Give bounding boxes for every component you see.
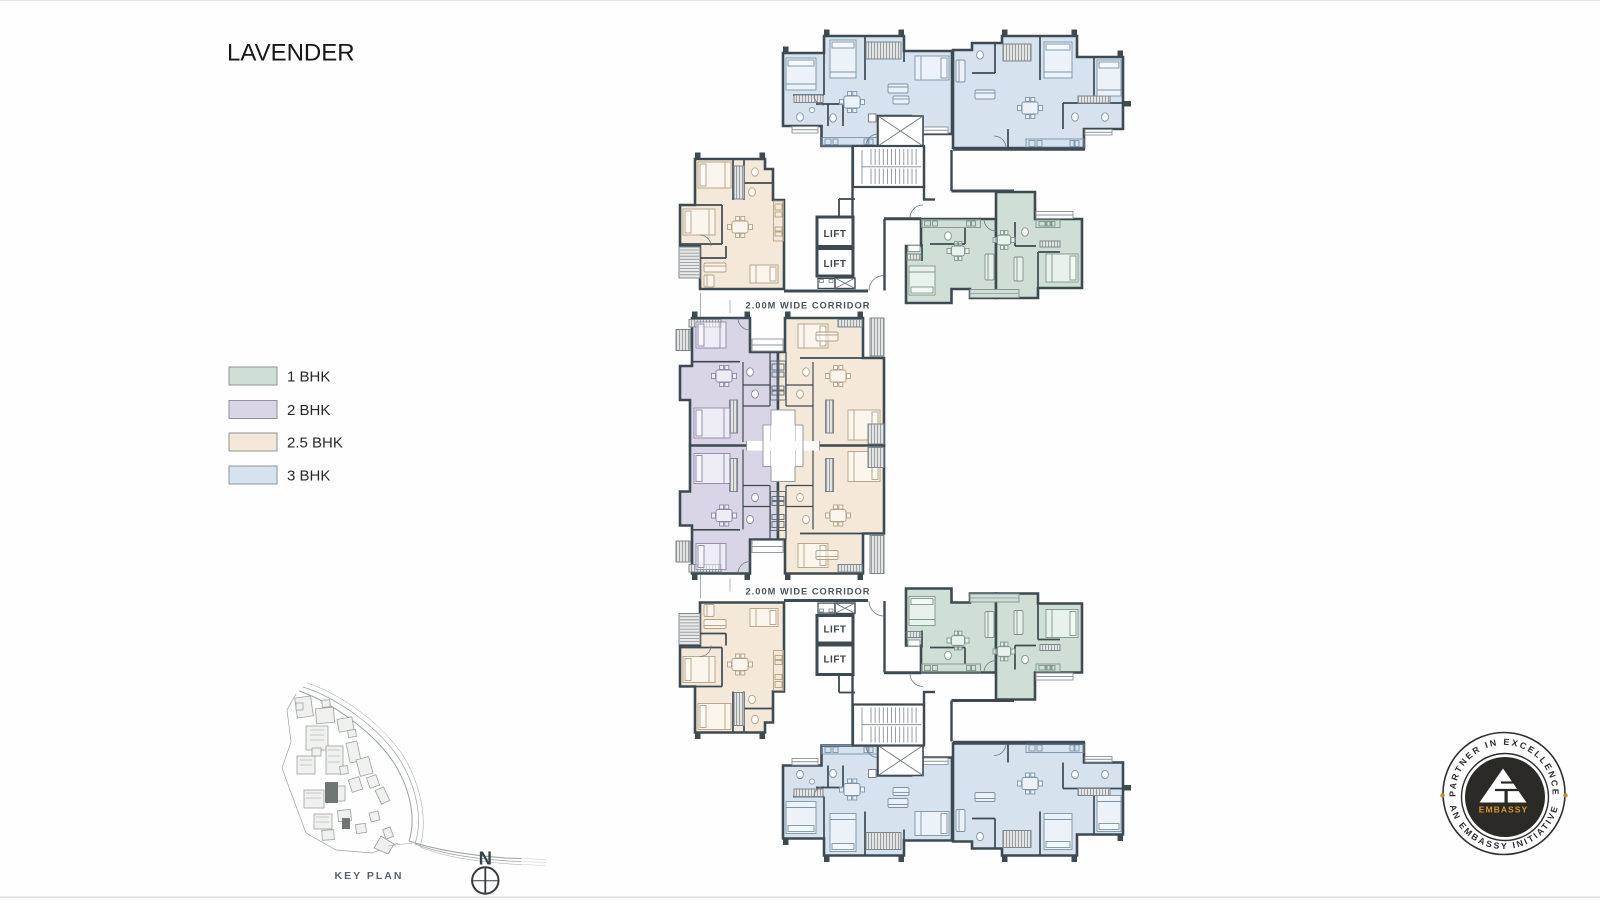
svg-text:EMBASSY: EMBASSY xyxy=(1479,805,1529,815)
svg-text:2.00M WIDE CORRIDOR: 2.00M WIDE CORRIDOR xyxy=(746,300,871,310)
svg-text:LIFT: LIFT xyxy=(823,259,846,270)
svg-text:3 BHK: 3 BHK xyxy=(287,468,330,485)
svg-text:N: N xyxy=(479,848,492,869)
svg-text:2.5 BHK: 2.5 BHK xyxy=(287,435,343,452)
svg-text:1 BHK: 1 BHK xyxy=(287,369,330,386)
svg-text:2.00M WIDE CORRIDOR: 2.00M WIDE CORRIDOR xyxy=(746,586,871,596)
svg-text:LIFT: LIFT xyxy=(823,655,846,666)
svg-text:LIFT: LIFT xyxy=(823,625,846,636)
svg-text:KEY PLAN: KEY PLAN xyxy=(335,870,404,882)
svg-text:LIFT: LIFT xyxy=(823,229,846,240)
svg-text:2 BHK: 2 BHK xyxy=(287,402,330,419)
svg-text:LAVENDER: LAVENDER xyxy=(227,40,355,67)
